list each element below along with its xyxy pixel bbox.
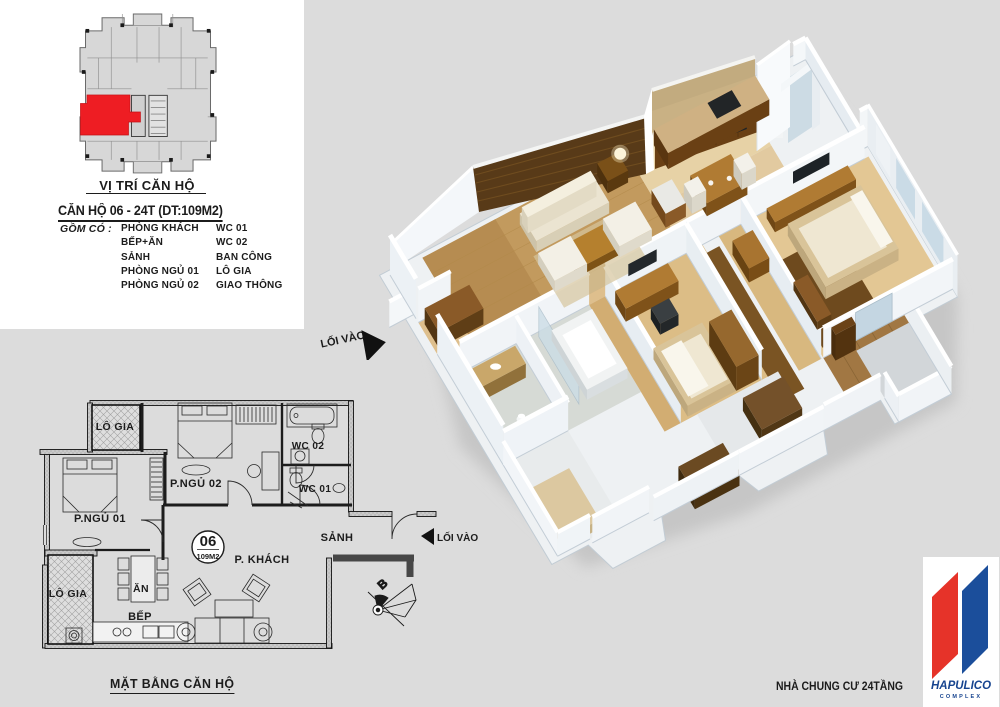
svg-text:WC 02: WC 02 xyxy=(292,441,325,452)
svg-text:LỐI VÀO: LỐI VÀO xyxy=(437,530,478,544)
svg-text:ĂN: ĂN xyxy=(133,582,149,595)
svg-text:LÔ GIA: LÔ GIA xyxy=(96,420,135,433)
svg-text:SẢNH: SẢNH xyxy=(321,531,354,544)
svg-text:BẾP: BẾP xyxy=(128,610,152,623)
svg-text:06: 06 xyxy=(200,533,217,550)
svg-text:HAPULICO: HAPULICO xyxy=(931,680,991,692)
svg-text:COMPLEX: COMPLEX xyxy=(940,694,983,700)
svg-text:LÔ GIA: LÔ GIA xyxy=(49,587,88,600)
svg-text:P.NGỦ 01: P.NGỦ 01 xyxy=(74,512,126,525)
svg-text:P.NGỦ 02: P.NGỦ 02 xyxy=(170,477,222,490)
svg-text:WC 01: WC 01 xyxy=(299,484,332,495)
svg-text:P. KHÁCH: P. KHÁCH xyxy=(235,553,290,566)
svg-text:B: B xyxy=(375,576,391,592)
svg-text:109M2: 109M2 xyxy=(197,552,220,561)
